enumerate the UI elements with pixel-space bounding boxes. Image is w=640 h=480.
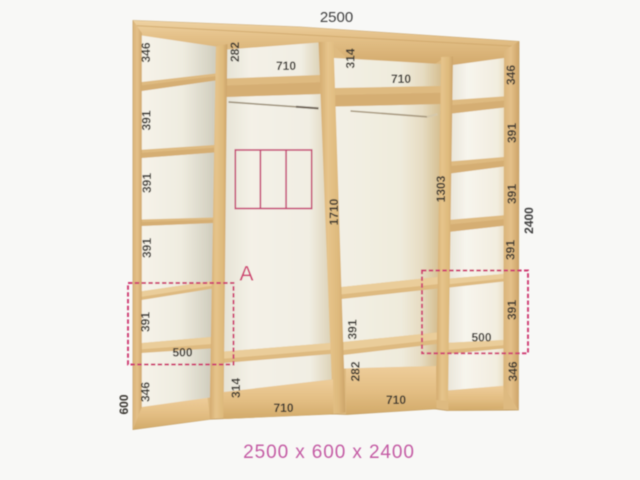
svg-text:2500: 2500 <box>320 9 353 26</box>
svg-text:391: 391 <box>504 240 518 260</box>
svg-text:1710: 1710 <box>327 198 341 225</box>
svg-text:710: 710 <box>276 59 296 73</box>
svg-text:2400: 2400 <box>522 207 536 234</box>
svg-text:500: 500 <box>172 345 192 359</box>
svg-text:391: 391 <box>140 173 154 193</box>
svg-text:391: 391 <box>505 123 519 143</box>
svg-text:346: 346 <box>504 65 518 85</box>
svg-text:391: 391 <box>140 238 154 258</box>
svg-text:346: 346 <box>139 382 153 402</box>
svg-text:2500 x 600 x 2400: 2500 x 600 x 2400 <box>243 442 415 463</box>
svg-text:710: 710 <box>273 401 293 415</box>
svg-text:710: 710 <box>386 393 406 407</box>
svg-text:314: 314 <box>344 48 358 68</box>
svg-text:346: 346 <box>506 361 520 381</box>
svg-text:391: 391 <box>505 300 519 320</box>
svg-text:391: 391 <box>139 312 153 332</box>
svg-text:391: 391 <box>346 319 360 339</box>
svg-text:314: 314 <box>229 378 243 398</box>
svg-text:A: A <box>239 263 253 286</box>
svg-text:282: 282 <box>349 361 363 381</box>
svg-text:391: 391 <box>140 110 154 130</box>
svg-text:346: 346 <box>139 42 153 62</box>
svg-text:600: 600 <box>117 394 131 414</box>
svg-text:1303: 1303 <box>434 175 448 202</box>
svg-text:500: 500 <box>471 331 491 345</box>
svg-text:710: 710 <box>391 72 411 86</box>
svg-text:282: 282 <box>228 42 242 62</box>
svg-text:391: 391 <box>505 184 519 204</box>
